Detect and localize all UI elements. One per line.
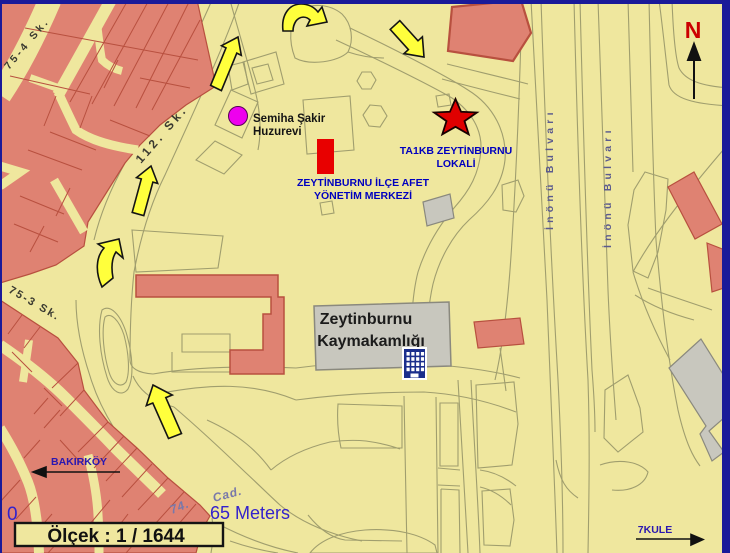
svg-text:65 Meters: 65 Meters bbox=[210, 503, 290, 523]
svg-text:İnönü Bulvarı: İnönü Bulvarı bbox=[543, 108, 556, 230]
svg-text:YÖNETİM MERKEZİ: YÖNETİM MERKEZİ bbox=[314, 189, 412, 202]
svg-text:İnönü Bulvarı: İnönü Bulvarı bbox=[601, 126, 614, 248]
svg-text:TA1KB ZEYTİNBURNU: TA1KB ZEYTİNBURNU bbox=[400, 144, 512, 157]
svg-text:Zeytinburnu: Zeytinburnu bbox=[320, 311, 412, 328]
svg-text:Ölçek : 1 / 1644: Ölçek : 1 / 1644 bbox=[47, 526, 185, 547]
svg-text:N: N bbox=[685, 17, 702, 43]
svg-text:ZEYTİNBURNU İLÇE AFET: ZEYTİNBURNU İLÇE AFET bbox=[297, 176, 430, 189]
svg-text:Huzurevi: Huzurevi bbox=[253, 126, 302, 138]
svg-text:LOKALİ: LOKALİ bbox=[436, 157, 475, 170]
svg-text:BAKIRKÖY: BAKIRKÖY bbox=[51, 455, 107, 468]
svg-text:Semiha Şakir: Semiha Şakir bbox=[253, 113, 326, 125]
svg-text:7KULE: 7KULE bbox=[638, 524, 672, 536]
